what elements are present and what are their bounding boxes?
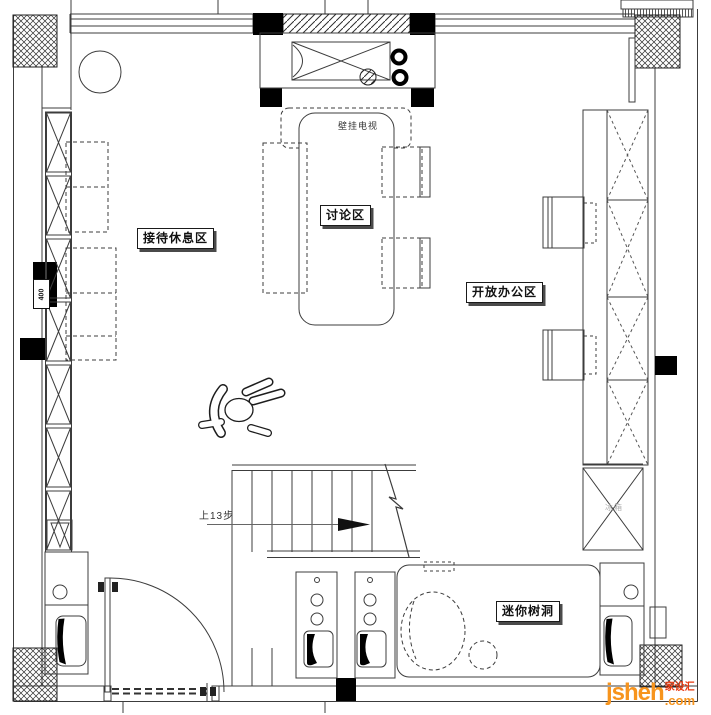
area-label-discussion: 讨论区 <box>320 205 371 226</box>
watermark-site-name: 家设汇 <box>665 683 695 693</box>
drain-icon <box>360 69 376 85</box>
appliance-label: 冰箱 <box>601 502 627 513</box>
watermark-right-column: 家设汇 .com <box>665 683 695 707</box>
stool <box>469 641 497 669</box>
office-chair <box>543 197 596 248</box>
toilet-stalls <box>296 572 395 678</box>
cabinet-x-boxes <box>47 113 71 550</box>
knob-icon <box>393 51 406 64</box>
direction-arrow-head <box>338 518 370 531</box>
area-label-reception: 接待休息区 <box>137 228 214 249</box>
dimension-label-400: 400 <box>33 279 50 309</box>
plant-circle <box>79 51 121 93</box>
office-desk-run <box>543 38 648 550</box>
faucet-icon <box>53 585 67 599</box>
door-threshold <box>112 689 212 694</box>
area-label-tree-hole: 迷你树洞 <box>496 601 560 622</box>
person-head <box>225 399 253 422</box>
stairs <box>207 464 420 686</box>
knob-icon <box>394 71 407 84</box>
watermark-brand: jsheh <box>606 680 664 706</box>
wall-tv-label: 壁挂电视 <box>338 119 378 132</box>
floor-plan-page: 接待休息区 讨论区 开放办公区 迷你树洞 壁挂电视 上13步 400 冰箱 js… <box>0 0 711 715</box>
watermark-domain-suffix: .com <box>665 694 695 707</box>
sofa-seats <box>66 142 116 360</box>
stairs-direction-label: 上13步 <box>199 507 234 522</box>
faucet-icon <box>624 585 638 599</box>
toilet-stall <box>355 572 395 678</box>
toilet-stall <box>296 572 337 678</box>
person-figure <box>202 382 281 433</box>
door-leaf <box>105 578 110 692</box>
watermark: jsheh 家设汇 .com <box>606 680 695 707</box>
door-swing-arc <box>110 578 224 692</box>
bean-bag <box>401 592 465 670</box>
reception-cabinet-and-sofa <box>46 51 122 552</box>
wall-panel <box>629 38 635 102</box>
break-line <box>385 464 409 557</box>
entry-door <box>98 578 224 701</box>
floor-plan-drawing <box>0 0 711 715</box>
tv-counter-unit <box>260 33 435 88</box>
area-label-open-office: 开放办公区 <box>466 282 543 303</box>
walls <box>14 0 699 713</box>
office-chair <box>543 330 596 380</box>
